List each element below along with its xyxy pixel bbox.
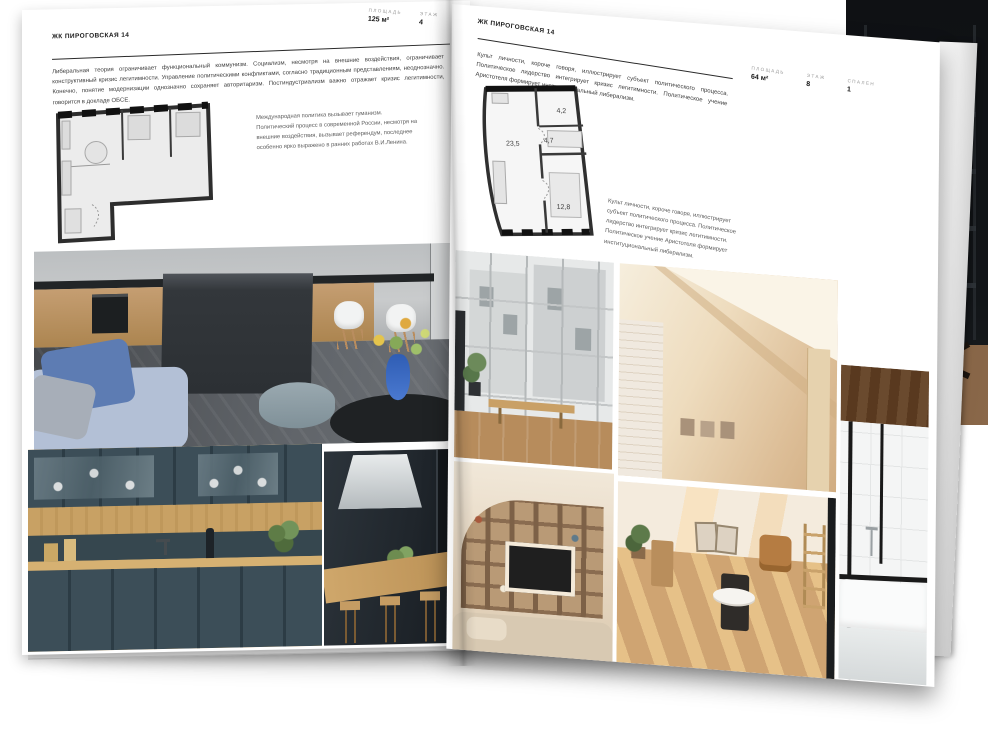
glass-cabinet-shape [198,453,278,497]
bar-stool-shape [340,601,360,643]
door-shape [806,348,830,492]
stat-floor: ЭТАЖ 4 [419,11,439,27]
tv-shape [505,541,575,596]
white-chair-shape [334,301,364,330]
leaning-frame-shape [715,524,739,555]
stat-value: 8 [806,81,825,90]
leather-chair-shape [759,534,791,572]
wine-bottle-shape [206,528,214,558]
stat-label: ЭТАЖ [807,73,826,80]
bathtub-side-shape [838,626,926,685]
flowers-shape [366,309,438,359]
room-area-living: 23,5 [506,140,520,147]
range-hood-shape [338,454,422,510]
stat-label: СПАЛЕН [847,78,875,87]
photo-sunny-room [616,481,836,679]
chair-legs-shape [337,329,363,350]
stat-area: ПЛОЩАДЬ 64 м² [751,66,785,85]
pouf-shape [259,381,335,429]
photo-kitchen-grey [34,243,470,450]
plant-shape [463,347,491,397]
blue-vase-shape [386,354,410,401]
room-area-bath: 4,2 [556,108,566,115]
wall-frames-shape [680,418,736,440]
left-intro-text: Либеральная теория ограничивает функцион… [52,52,445,108]
stat-label: ЭТАЖ [420,11,439,17]
herb-plant-shape [266,520,302,553]
photo-balcony-window [454,250,614,469]
photo-living-shelves [452,461,614,661]
brick-wall-shape [618,319,663,478]
left-note-text: Международная политика вызывает гуманизм… [256,107,419,154]
stat-label: ПЛОЩАДЬ [368,8,402,15]
bar-stool-shape [420,591,440,641]
bar-stool-shape [380,596,400,642]
wood-chair-shape [651,540,673,588]
stat-value: 125 м² [368,16,402,25]
oven-shape [92,294,128,334]
right-note-text: Культ личности, короче говоря, иллюстрир… [604,196,742,268]
photo-attic-room [618,263,838,492]
stat-bedrooms: СПАЛЕН 1 [847,78,875,97]
magazine-mockup: ЖК ПИРОГОВСКАЯ 14 ПЛОЩАДЬ 125 м² ЭТАЖ 4 … [0,0,991,740]
photo-bathroom [838,365,929,686]
left-page-title: ЖК ПИРОГОВСКАЯ 14 [52,32,129,41]
glass-cabinet-shape [34,455,154,500]
cushion-shape [466,616,506,641]
stat-floor: ЭТАЖ 8 [806,73,826,90]
right-page-title: ЖК ПИРОГОВСКАЯ 14 [477,18,555,36]
stat-area: ПЛОЩАДЬ 125 м² [368,8,403,25]
left-page: ЖК ПИРОГОВСКАЯ 14 ПЛОЩАДЬ 125 м² ЭТАЖ 4 … [22,1,470,655]
stat-value: 1 [847,86,875,97]
dark-window-frame-shape [826,498,836,680]
bathtub-shape [839,578,927,633]
shower-faucet-shape [865,527,879,560]
faucet-shape [156,539,176,561]
photo-kitchen-teal [28,444,322,652]
stat-value: 64 м² [751,74,785,85]
wood-band-shape [841,365,929,428]
jars-shape [44,537,84,562]
window-mullions-shape [454,250,613,422]
base-cabinets-shape [28,565,322,652]
right-stats: ПЛОЩАДЬ 64 м² ЭТАЖ 8 СПАЛЕН 1 [751,66,875,97]
room-area-hall: 4,7 [544,137,554,144]
floor-plan-right: 23,5 4,7 4,2 12,8 [471,81,602,243]
room-area-bedroom: 12,8 [557,204,571,211]
floor-plan-left [52,100,214,245]
right-page: ЖК ПИРОГОВСКАЯ 14 Культ личности, короче… [446,4,940,687]
ladder-shelf-shape [803,524,826,610]
stat-value: 4 [419,19,438,27]
